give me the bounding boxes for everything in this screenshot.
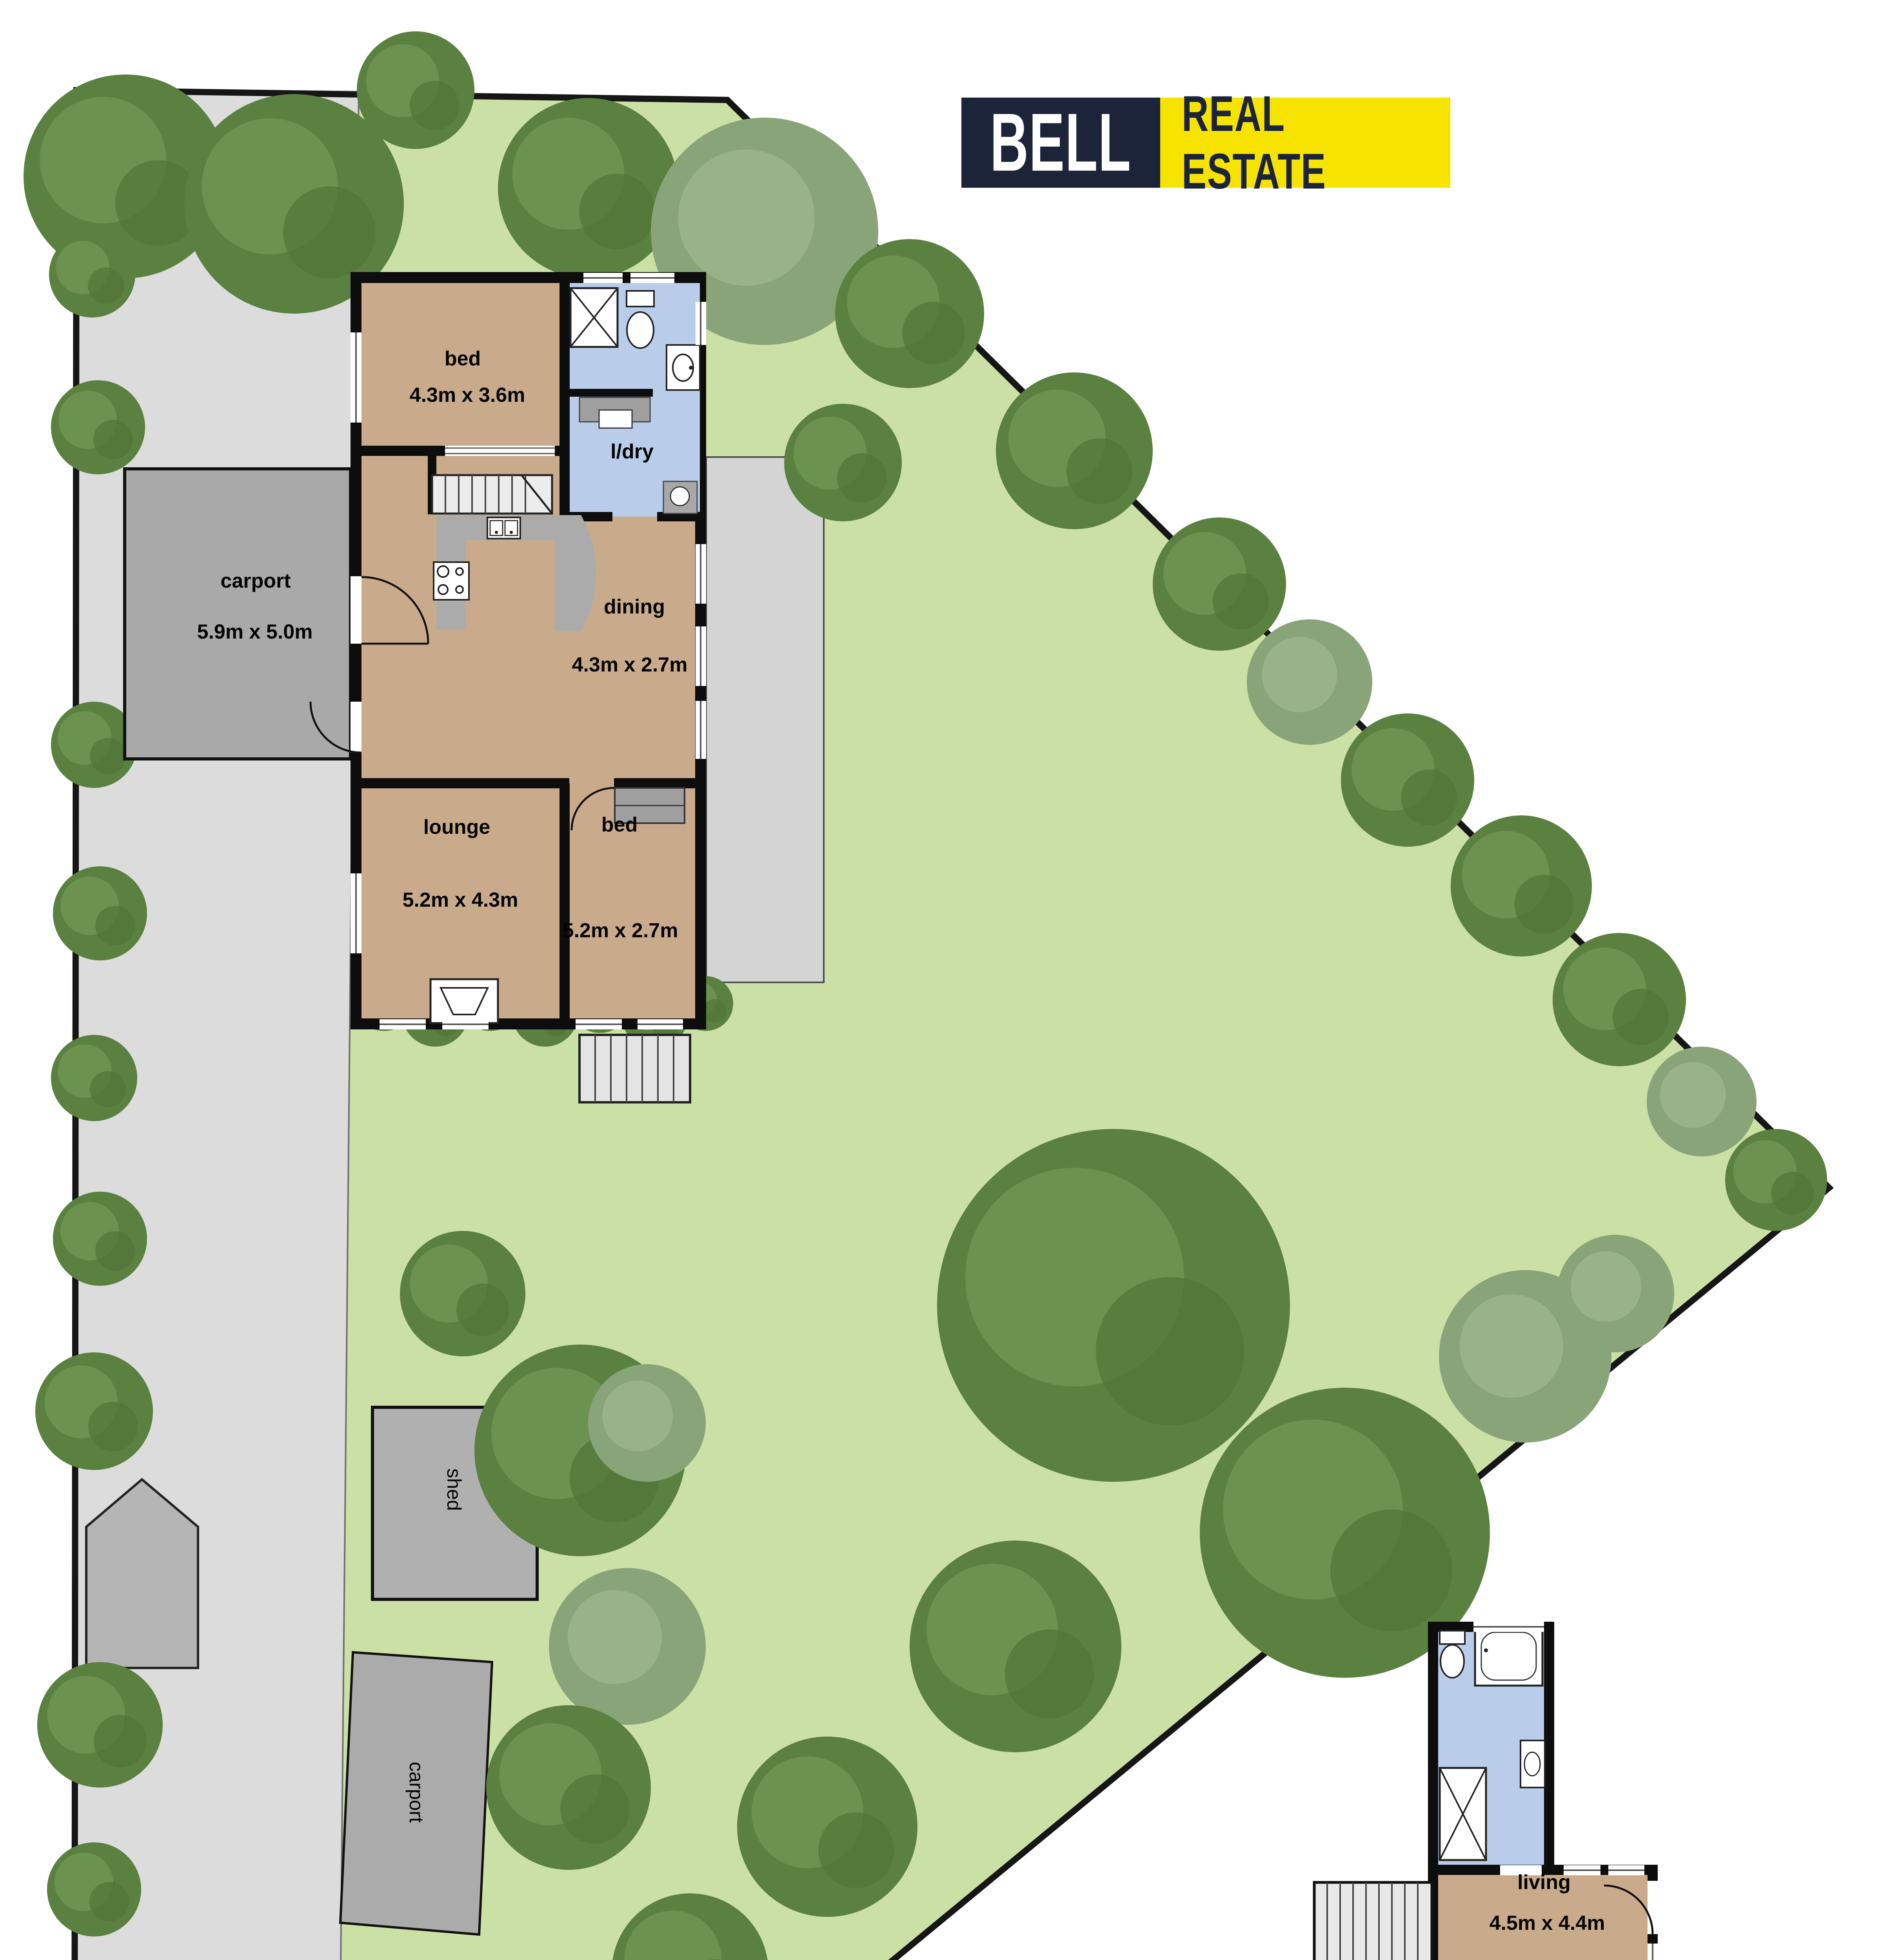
tree-icon [1725,1129,1827,1231]
fireplace-icon [431,979,498,1023]
tree-icon [1557,1235,1674,1352]
room-label-living: living [1517,1872,1571,1893]
site-plan-graphic: shed carport [0,0,1882,1960]
room-label-laundry: l/dry [610,441,654,462]
tree-icon [937,1129,1290,1482]
tree-icon [549,1568,706,1725]
toilet-icon [627,291,654,348]
tree-icon [996,372,1153,529]
tree-icon [1247,619,1372,745]
room-label-bed1: bed [445,348,481,369]
tree-icon [784,404,902,521]
tree-icon [53,1192,147,1286]
tree-icon [1341,713,1474,847]
room-dims-living: 4.5m x 4.4m [1490,1913,1605,1933]
tree-icon [1153,517,1286,651]
tree-icon [357,31,474,149]
basin-icon [667,345,700,390]
tree-icon [498,98,678,278]
shower-icon [1440,1768,1486,1860]
deck-steps [579,1035,690,1102]
rear-carport-label: carport [405,1762,427,1823]
shower-icon [570,288,618,347]
room-label-lounge: lounge [423,817,490,837]
deck [706,457,824,982]
tree-icon [35,1352,153,1470]
toilet-icon [1440,1631,1465,1678]
tree-icon [1647,1047,1757,1156]
room-label-carport: carport [220,571,291,591]
tree-icon [400,1231,525,1356]
logo-brand-box: BELL [961,98,1160,188]
bathtub-icon [1475,1627,1542,1686]
tree-icon [49,231,135,318]
room-dims-bed1: 4.3m x 3.6m [410,385,525,405]
room-label-dining: dining [604,597,665,617]
tree-icon [51,1035,137,1121]
tree-icon [737,1737,917,1917]
stairs-main [432,475,552,514]
tree-icon [47,1842,141,1936]
room-dims-carport: 5.9m x 5.0m [197,622,313,642]
tree-icon [835,239,984,388]
logo-tagline-box: REAL ESTATE [1160,98,1450,188]
logo-tagline-text: REAL ESTATE [1182,85,1381,200]
shed-label: shed [443,1468,465,1511]
room-label-bed2: bed [601,815,638,835]
room-dims-lounge: 5.2m x 4.3m [403,890,518,910]
tree-icon [51,380,145,474]
bell-real-estate-logo: BELL REAL ESTATE [961,98,1450,188]
logo-brand-text: BELL [990,95,1132,190]
tree-icon [53,866,147,960]
site-plan-page: shed carport [0,0,1882,1960]
room-dims-dining: 4.3m x 2.7m [572,655,688,675]
sink-icon [487,517,520,539]
room-dims-bed2: 5.2m x 2.7m [563,920,678,941]
stairs-lower [1314,1882,1432,1960]
tree-icon [910,1541,1121,1752]
tree-icon [1451,815,1592,956]
tree-icon [37,1662,163,1788]
tree-icon [1553,933,1686,1066]
stove-icon [434,562,469,600]
carport-area [125,469,351,759]
tree-icon [588,1364,706,1482]
basin-icon [1520,1740,1545,1788]
tree-icon [486,1705,651,1870]
